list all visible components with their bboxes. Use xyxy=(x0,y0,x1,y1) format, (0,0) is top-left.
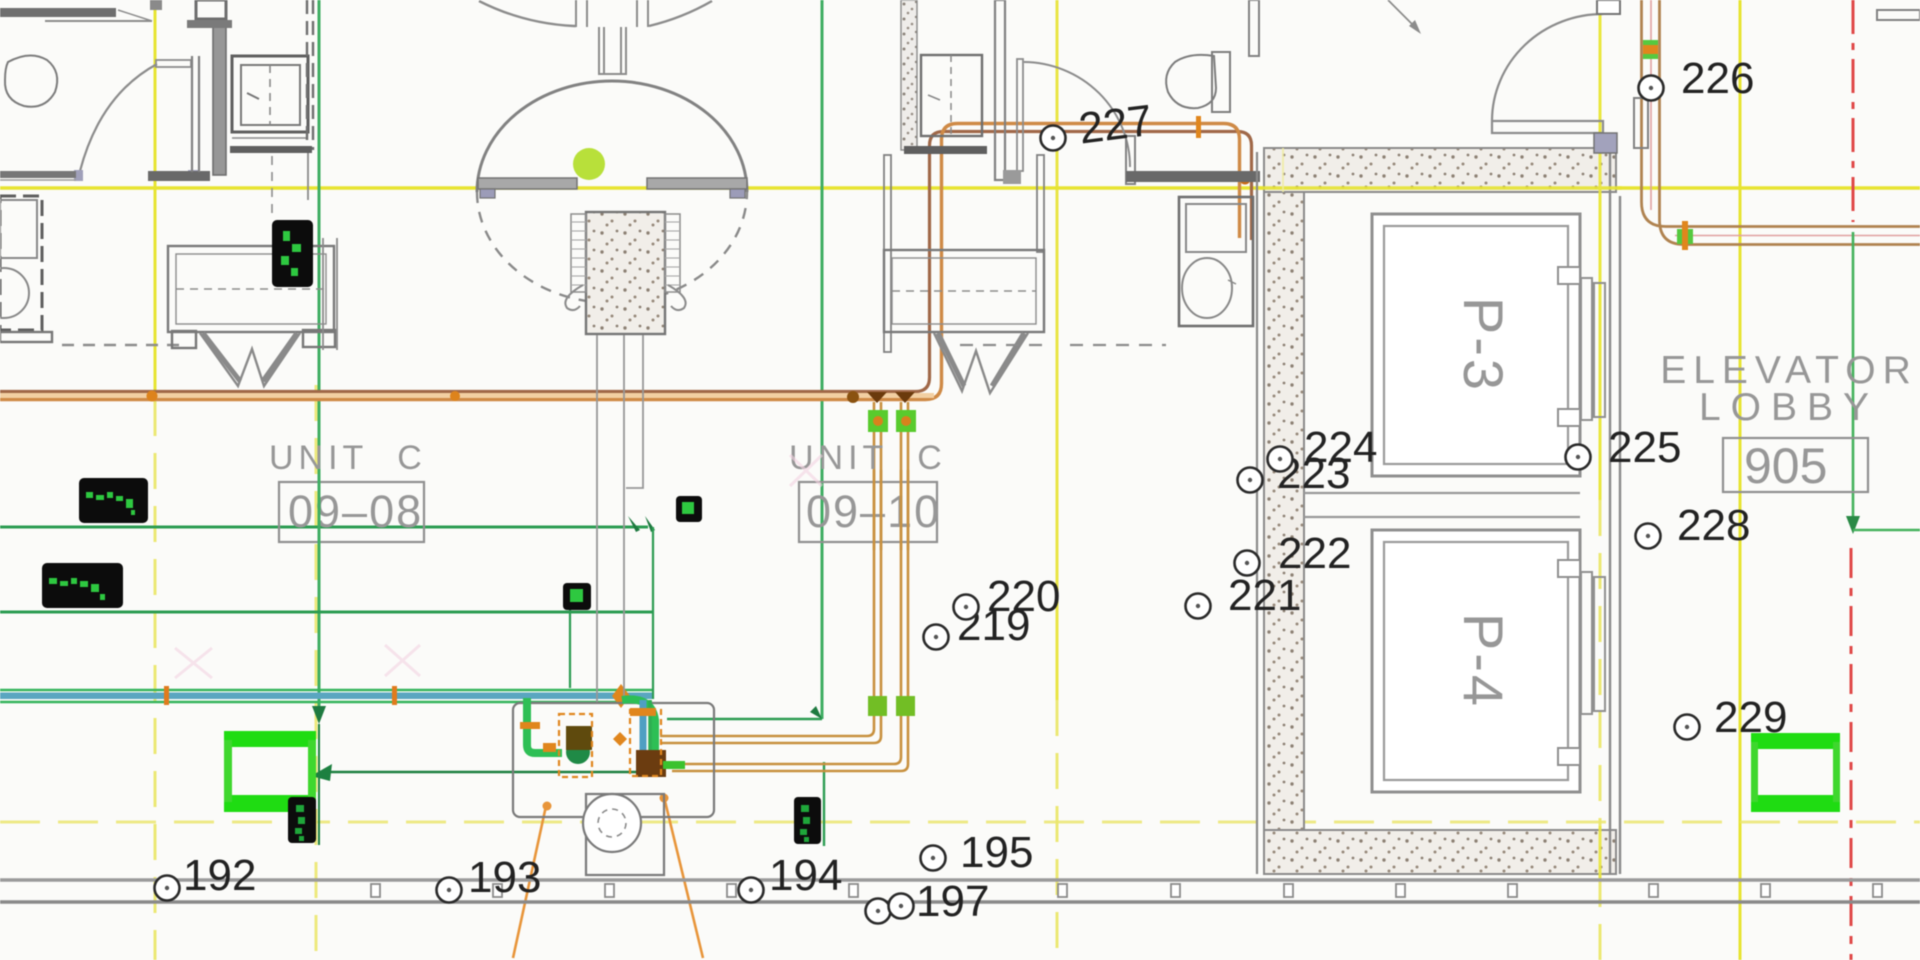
svg-text:195: 195 xyxy=(960,828,1033,877)
svg-text:229: 229 xyxy=(1714,693,1787,742)
svg-text:LOBBY: LOBBY xyxy=(1699,386,1879,429)
svg-text:228: 228 xyxy=(1677,501,1750,550)
svg-text:224: 224 xyxy=(1304,423,1377,472)
svg-text:221: 221 xyxy=(1228,571,1301,620)
svg-text:905: 905 xyxy=(1744,438,1827,494)
svg-text:P-4: P-4 xyxy=(1452,613,1515,709)
svg-text:225: 225 xyxy=(1608,423,1681,472)
svg-text:227: 227 xyxy=(1076,96,1155,154)
svg-text:UNIT C: UNIT C xyxy=(269,439,427,477)
svg-text:194: 194 xyxy=(769,851,842,900)
svg-text:09–08: 09–08 xyxy=(288,486,423,537)
svg-text:222: 222 xyxy=(1278,529,1351,578)
svg-text:192: 192 xyxy=(183,851,256,900)
svg-text:220: 220 xyxy=(987,572,1060,621)
svg-text:197: 197 xyxy=(916,877,989,926)
svg-text:193: 193 xyxy=(468,853,541,902)
svg-text:UNIT C: UNIT C xyxy=(789,439,947,477)
svg-text:226: 226 xyxy=(1681,54,1754,103)
svg-text:P-3: P-3 xyxy=(1452,297,1515,393)
